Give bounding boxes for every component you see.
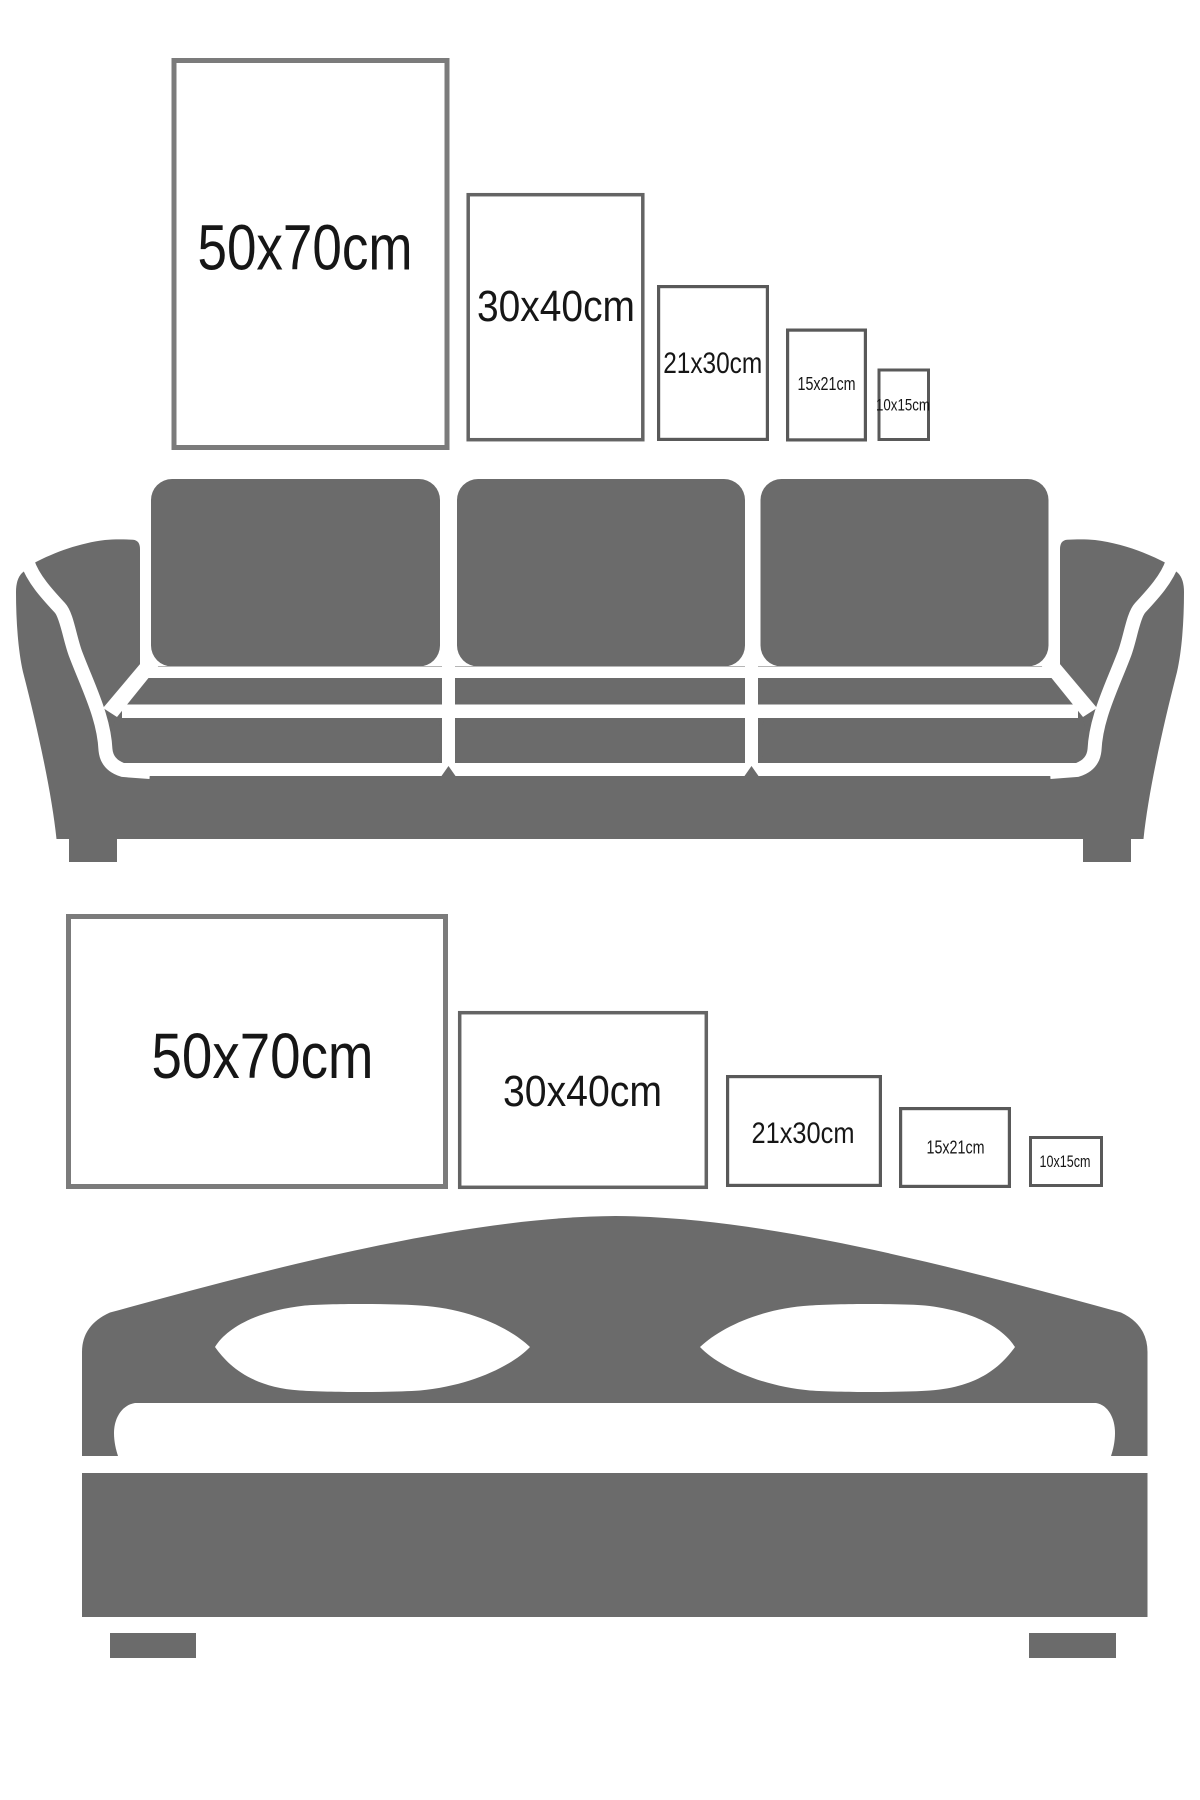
svg-text:15x21cm: 15x21cm bbox=[798, 374, 856, 394]
svg-text:21x30cm: 21x30cm bbox=[663, 347, 762, 380]
svg-text:30x40cm: 30x40cm bbox=[477, 282, 635, 331]
svg-text:50x70cm: 50x70cm bbox=[198, 212, 413, 284]
svg-text:50x70cm: 50x70cm bbox=[152, 1020, 374, 1092]
svg-text:21x30cm: 21x30cm bbox=[752, 1117, 855, 1150]
svg-text:10x15cm: 10x15cm bbox=[1040, 1153, 1091, 1171]
svg-text:15x21cm: 15x21cm bbox=[927, 1138, 985, 1158]
svg-text:10x15cm: 10x15cm bbox=[876, 397, 930, 415]
svg-text:30x40cm: 30x40cm bbox=[503, 1067, 662, 1116]
